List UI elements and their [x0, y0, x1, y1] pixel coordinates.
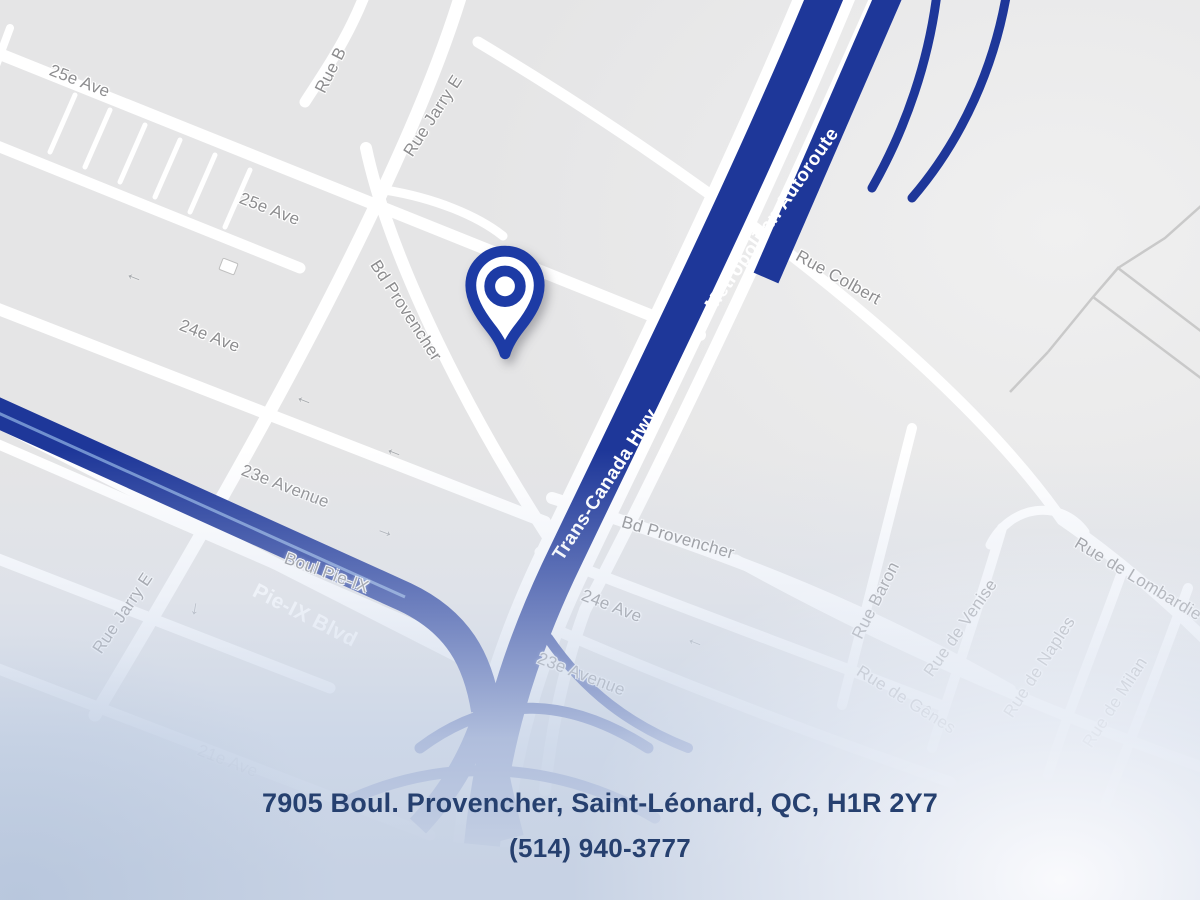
location-footer: 7905 Boul. Provencher, Saint-Léonard, QC… — [0, 788, 1200, 864]
highway-ramp-2 — [912, 0, 1008, 198]
street-address-text: 7905 Boul. Provencher, Saint-Léonard, QC… — [0, 788, 1200, 819]
map-screenshot: 25e Ave 25e Ave 24e Ave 23e Avenue Boul … — [0, 0, 1200, 900]
map-roads-canvas — [0, 0, 1200, 900]
highways-blue — [0, 0, 1008, 845]
boundary-lines — [1010, 180, 1200, 400]
phone-number-text: (514) 940-3777 — [0, 833, 1200, 864]
pin-center-ring — [490, 271, 521, 302]
location-pin-icon — [460, 244, 550, 370]
